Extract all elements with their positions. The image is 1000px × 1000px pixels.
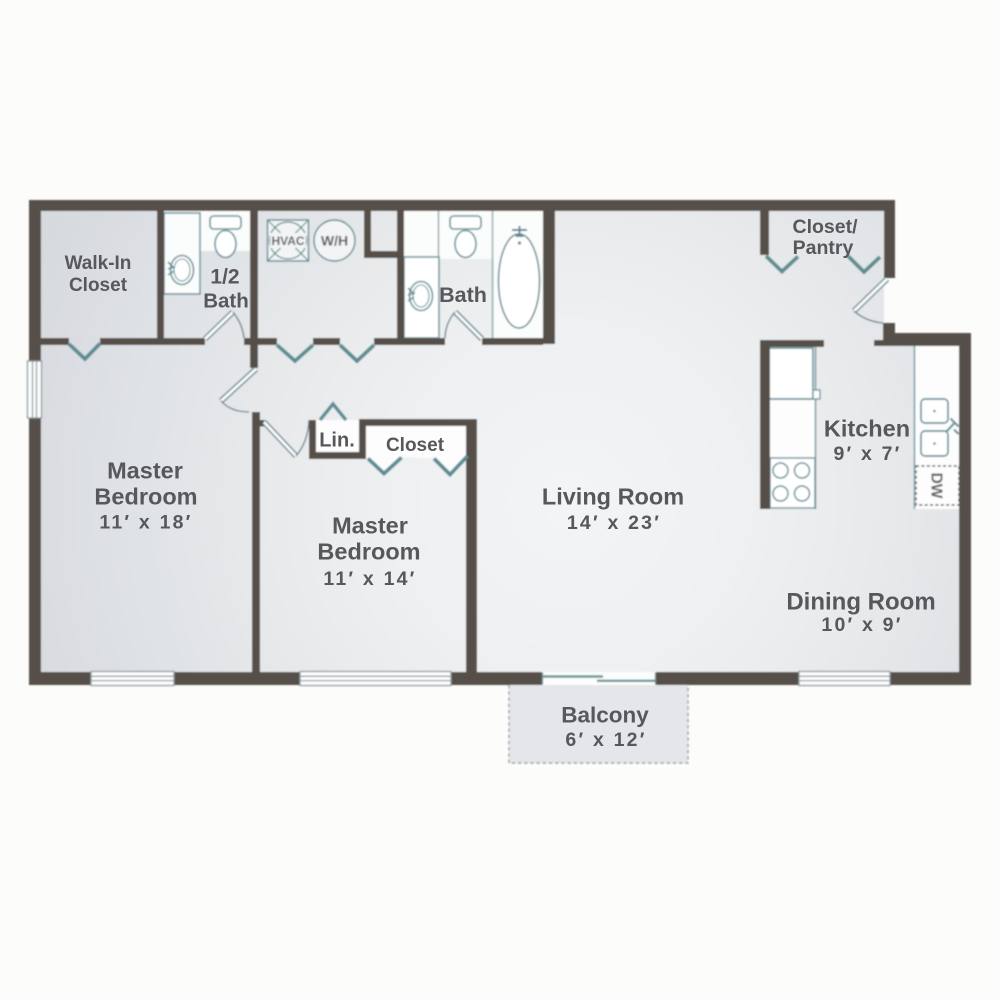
svg-text:Lin.: Lin. <box>319 429 355 451</box>
svg-text:14′ x 23′: 14′ x 23′ <box>567 512 661 534</box>
svg-text:Master: Master <box>332 513 408 539</box>
svg-text:Bath: Bath <box>439 283 487 307</box>
svg-text:Bath: Bath <box>203 290 249 313</box>
svg-text:Closet: Closet <box>69 275 128 296</box>
svg-text:Pantry: Pantry <box>793 237 854 259</box>
svg-text:Dining Room: Dining Room <box>786 589 935 616</box>
svg-text:11′ x 14′: 11′ x 14′ <box>323 568 416 590</box>
svg-text:1/2: 1/2 <box>210 266 239 289</box>
svg-text:Balcony: Balcony <box>561 703 649 728</box>
svg-text:10′ x 9′: 10′ x 9′ <box>821 614 902 636</box>
svg-text:Walk-In: Walk-In <box>65 253 132 274</box>
svg-text:DW: DW <box>928 473 945 499</box>
svg-text:9′ x 7′: 9′ x 7′ <box>833 443 901 465</box>
svg-text:11′ x 18′: 11′ x 18′ <box>99 512 192 534</box>
svg-text:Bedroom: Bedroom <box>94 484 197 510</box>
svg-text:W/H: W/H <box>321 233 348 249</box>
svg-text:Living Room: Living Room <box>542 484 684 510</box>
svg-text:Kitchen: Kitchen <box>824 416 910 442</box>
svg-text:Closet: Closet <box>386 435 445 456</box>
svg-text:Closet/: Closet/ <box>792 216 858 238</box>
svg-text:Bedroom: Bedroom <box>317 539 420 565</box>
svg-text:6′ x 12′: 6′ x 12′ <box>565 729 646 751</box>
svg-text:HVAC: HVAC <box>271 234 304 248</box>
svg-text:Master: Master <box>107 458 183 484</box>
